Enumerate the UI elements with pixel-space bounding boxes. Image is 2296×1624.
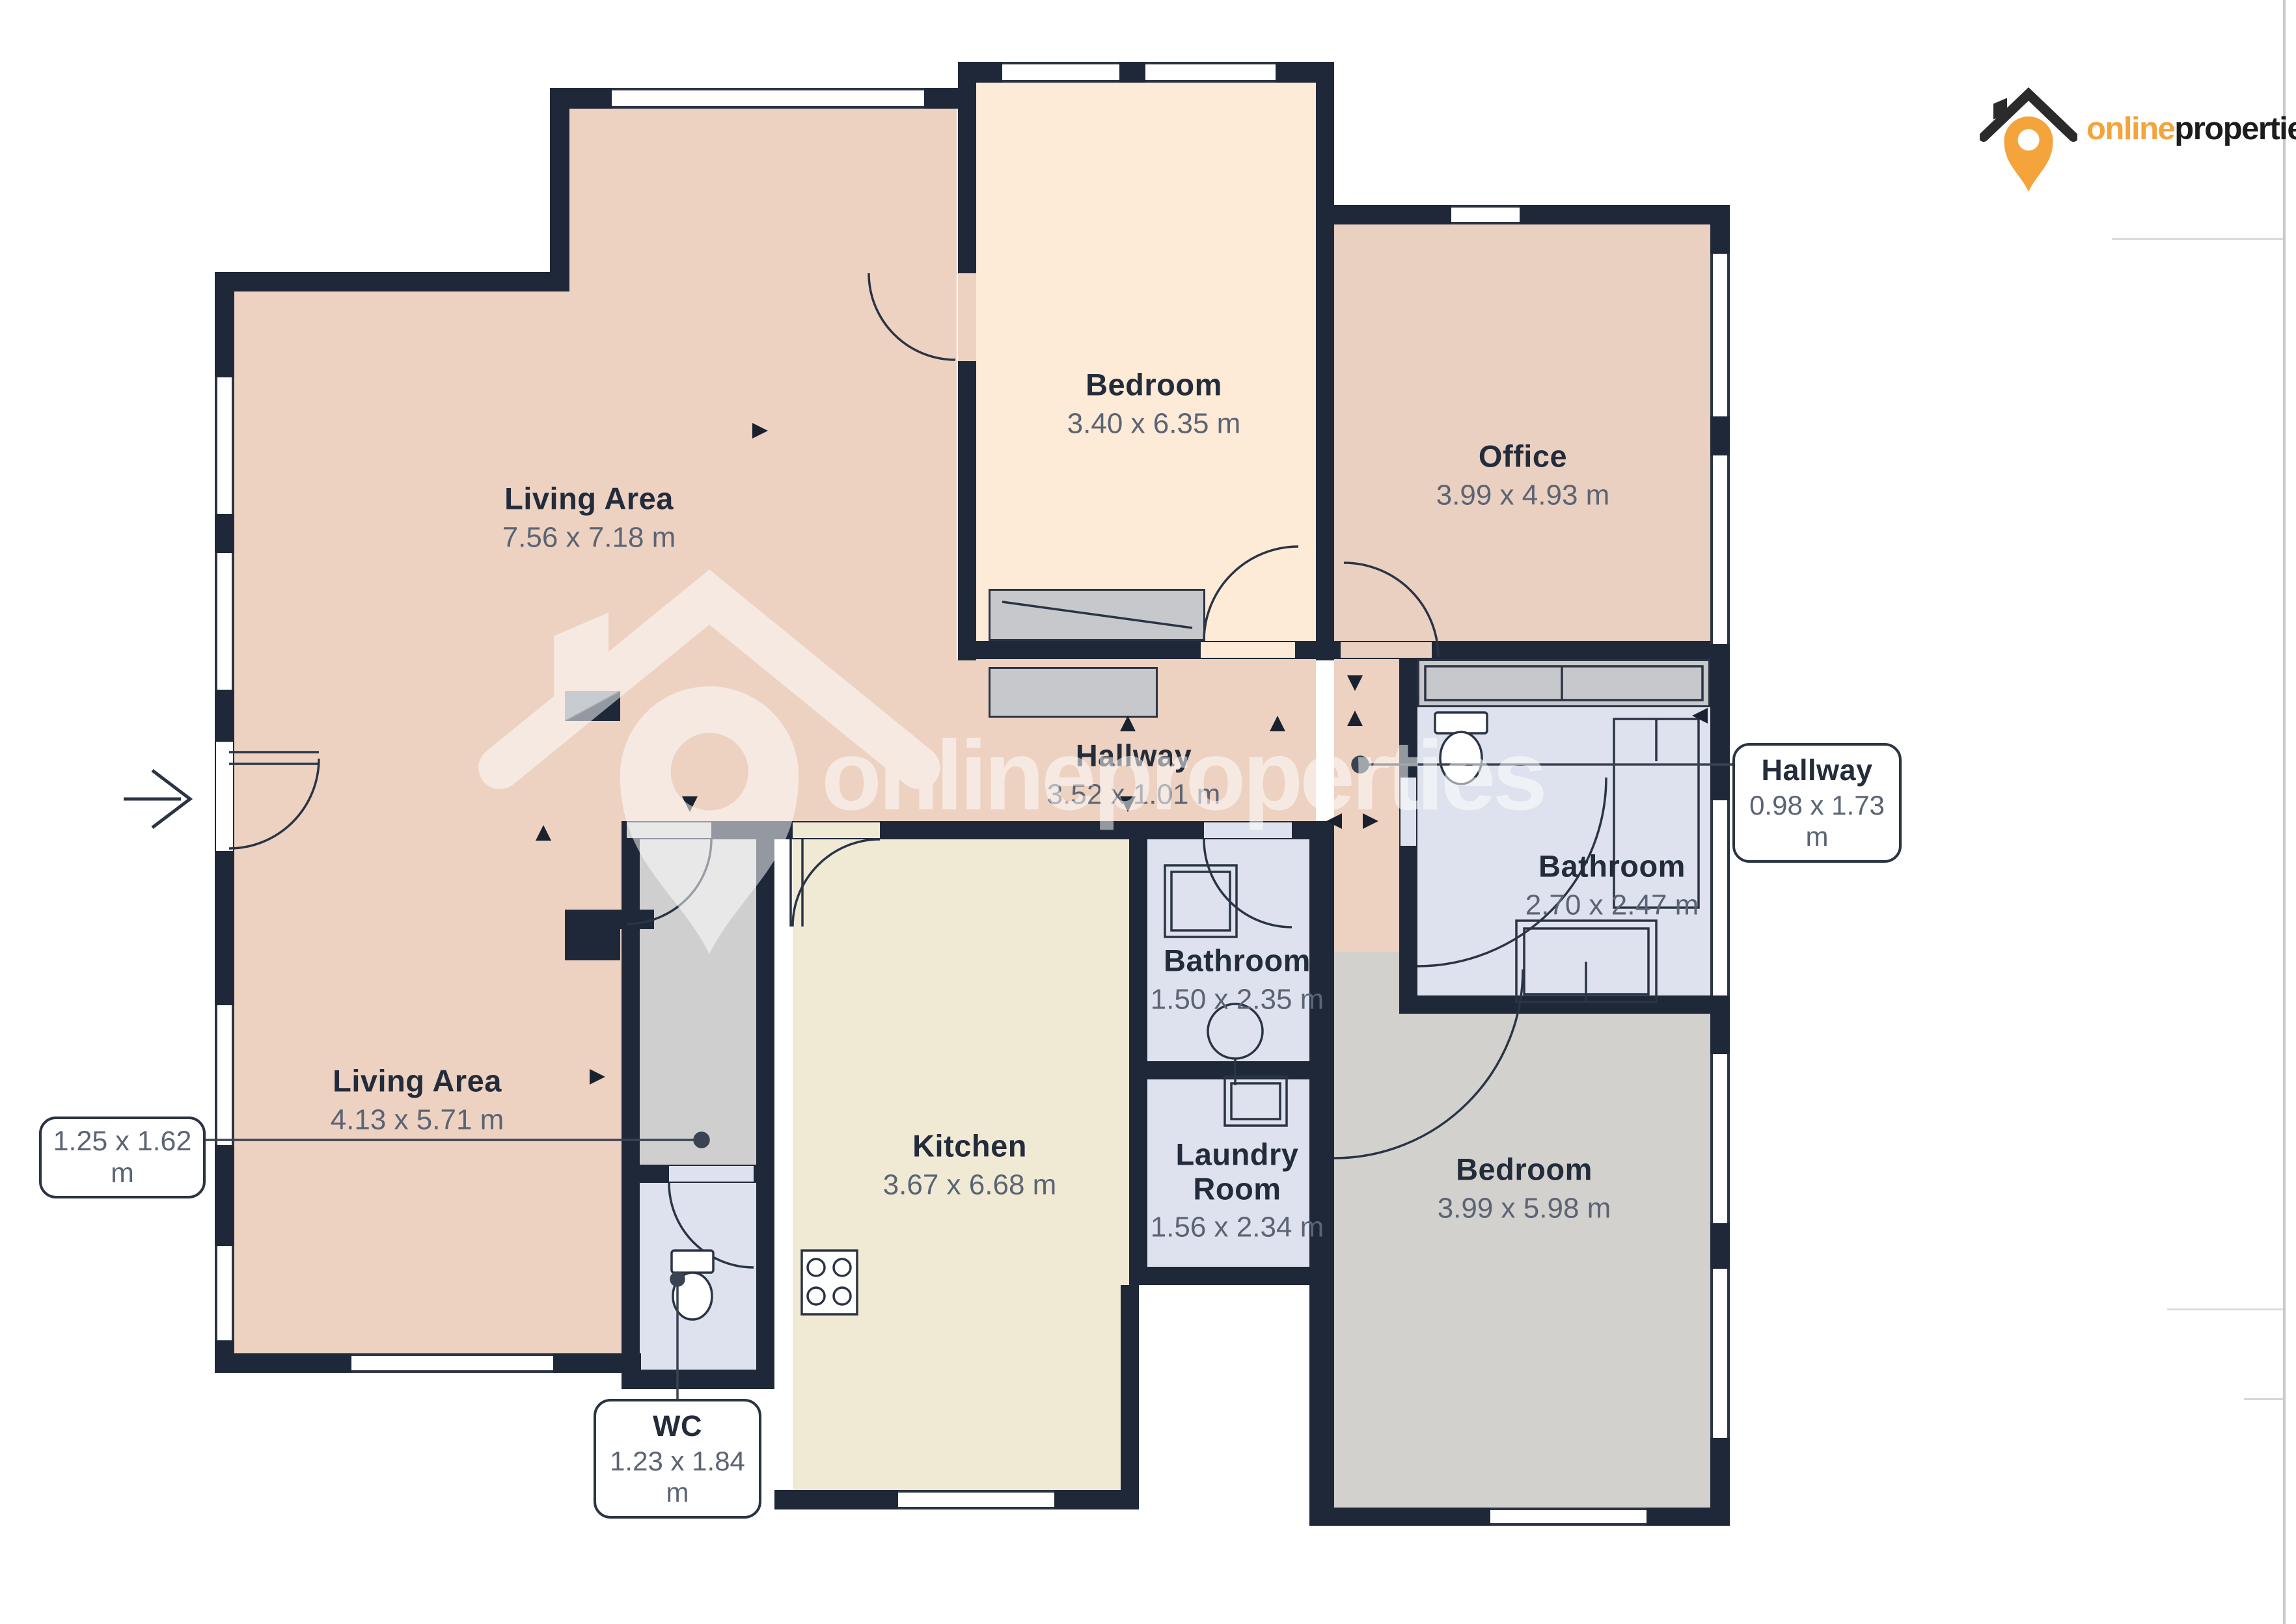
- closet-bedroom-top: [989, 589, 1205, 641]
- room-dims: 7.56 x 7.18 m: [502, 522, 676, 554]
- wall-segment: [1334, 205, 1730, 224]
- wall-segment: [1316, 62, 1334, 660]
- room-dims: 3.40 x 6.35 m: [1067, 408, 1241, 440]
- room-wc: [640, 1183, 756, 1370]
- door-opening: [1341, 642, 1432, 658]
- room-name: Hallway: [1047, 738, 1221, 774]
- callout-dims: 0.98 x 1.73 m: [1748, 790, 1886, 852]
- callout-hallway-side: Hallway 0.98 x 1.73 m: [1732, 743, 1902, 863]
- window: [612, 88, 924, 109]
- room-office: [1334, 224, 1710, 641]
- room-hallway-side: [1334, 659, 1399, 952]
- wall-segment: [622, 1370, 774, 1389]
- room-label-bathroom-mid: Bathroom 1.50 x 2.35 m: [1151, 943, 1324, 1016]
- page-edge-line: [2283, 0, 2286, 1624]
- wall-segment: [1417, 995, 1710, 1014]
- window: [215, 553, 234, 690]
- callout-wc: WC 1.23 x 1.84 m: [594, 1399, 761, 1519]
- brand-properties: properties: [2174, 111, 2296, 146]
- panel-divider-line: [2244, 1398, 2283, 1400]
- room-bedroom-bottom: [1334, 952, 1710, 1508]
- callout-closet: 1.25 x 1.62 m: [39, 1116, 206, 1198]
- window: [1710, 254, 1730, 416]
- wall-segment: [1147, 1061, 1309, 1079]
- door-opening: [1201, 642, 1295, 658]
- callout-dims: 1.25 x 1.62 m: [51, 1126, 194, 1189]
- window: [1451, 205, 1520, 224]
- window: [1710, 800, 1730, 995]
- room-dims: 1.50 x 2.35 m: [1151, 984, 1324, 1016]
- brand-logo-icon: [1980, 78, 2077, 206]
- room-label-bedroom-bottom: Bedroom 3.99 x 5.98 m: [1438, 1152, 1611, 1225]
- room-name: Bathroom: [1525, 848, 1699, 884]
- room-living-area-top: [234, 291, 957, 822]
- wall-segment: [622, 821, 640, 1389]
- room-dims: 3.67 x 6.68 m: [883, 1169, 1057, 1202]
- room-name: Office: [1436, 439, 1610, 474]
- brand-logo: onlineproperties: [1980, 78, 2296, 206]
- callout-dims: 1.23 x 1.84 m: [609, 1446, 746, 1508]
- room-dims: 4.13 x 5.71 m: [331, 1104, 504, 1137]
- closet-hallway: [989, 667, 1158, 718]
- window: [215, 1246, 234, 1340]
- room-kitchen: [793, 1285, 1121, 1490]
- room-name: Bedroom: [1438, 1152, 1611, 1187]
- wall-segment: [1147, 1267, 1316, 1285]
- room-dims: 3.52 x 1.01 m: [1047, 779, 1221, 811]
- wall-stub: [582, 910, 654, 929]
- room-corridor: [640, 839, 756, 1165]
- window: [898, 1490, 1054, 1509]
- room-label-bathroom-right: Bathroom 2.70 x 2.47 m: [1525, 848, 1699, 922]
- room-name: Bedroom: [1067, 367, 1241, 403]
- window: [215, 1005, 234, 1145]
- window: [1710, 455, 1730, 644]
- room-label-kitchen: Kitchen 3.67 x 6.68 m: [883, 1128, 1057, 1202]
- door-opening: [1204, 822, 1292, 838]
- room-name: Kitchen: [883, 1128, 1057, 1164]
- window: [351, 1353, 553, 1373]
- room-living-area-top: [550, 107, 957, 291]
- door-opening: [669, 1166, 754, 1182]
- wall-segment: [1399, 952, 1417, 1014]
- callout-name: WC: [609, 1409, 746, 1443]
- room-label-living-bottom: Living Area 4.13 x 5.71 m: [331, 1063, 504, 1137]
- panel-divider-line: [2112, 238, 2283, 240]
- room-dims: 3.99 x 5.98 m: [1438, 1193, 1611, 1225]
- room-dims: 1.56 x 2.34 m: [1143, 1211, 1332, 1244]
- window: [1002, 62, 1119, 83]
- room-label-bedroom-top: Bedroom 3.40 x 6.35 m: [1067, 367, 1241, 440]
- room-label-laundry: Laundry Room 1.56 x 2.34 m: [1143, 1137, 1332, 1243]
- wall-segment: [550, 88, 569, 291]
- wall-segment: [215, 272, 550, 291]
- room-label-office: Office 3.99 x 4.93 m: [1436, 439, 1610, 512]
- room-label-living-top: Living Area 7.56 x 7.18 m: [502, 481, 676, 554]
- brand-online: online: [2086, 111, 2174, 146]
- door-opening: [1401, 778, 1416, 846]
- panel-divider-line: [2167, 1308, 2283, 1310]
- room-dims: 2.70 x 2.47 m: [1525, 889, 1699, 922]
- door-opening: [958, 273, 976, 361]
- window: [1710, 1054, 1730, 1223]
- callout-name: Hallway: [1748, 753, 1886, 787]
- room-bedroom-top: [976, 81, 1316, 641]
- entrance-opening: [216, 742, 233, 851]
- room-name: Laundry Room: [1143, 1137, 1332, 1206]
- brand-logo-text: onlineproperties: [2086, 111, 2296, 147]
- room-kitchen: [793, 839, 1129, 1285]
- door-opening: [627, 822, 711, 838]
- window: [215, 377, 234, 514]
- room-label-hallway: Hallway 3.52 x 1.01 m: [1047, 738, 1221, 811]
- wall-segment: [1121, 1285, 1139, 1509]
- floorplan-page: Living Area 7.56 x 7.18 m Bedroom 3.40 x…: [0, 0, 2296, 1624]
- room-name: Bathroom: [1151, 943, 1324, 979]
- closet-bathroom-right: [1417, 659, 1710, 707]
- wall-segment: [958, 83, 976, 660]
- room-name: Living Area: [331, 1063, 504, 1099]
- room-dims: 3.99 x 4.93 m: [1436, 480, 1610, 512]
- wall-stub: [565, 691, 620, 721]
- door-opening: [793, 822, 880, 838]
- window: [1490, 1508, 1647, 1526]
- room-name: Living Area: [502, 481, 676, 517]
- entrance-arrow-icon: [124, 770, 190, 828]
- window: [1145, 62, 1276, 83]
- wall-segment: [756, 821, 774, 1389]
- window: [1710, 1269, 1730, 1438]
